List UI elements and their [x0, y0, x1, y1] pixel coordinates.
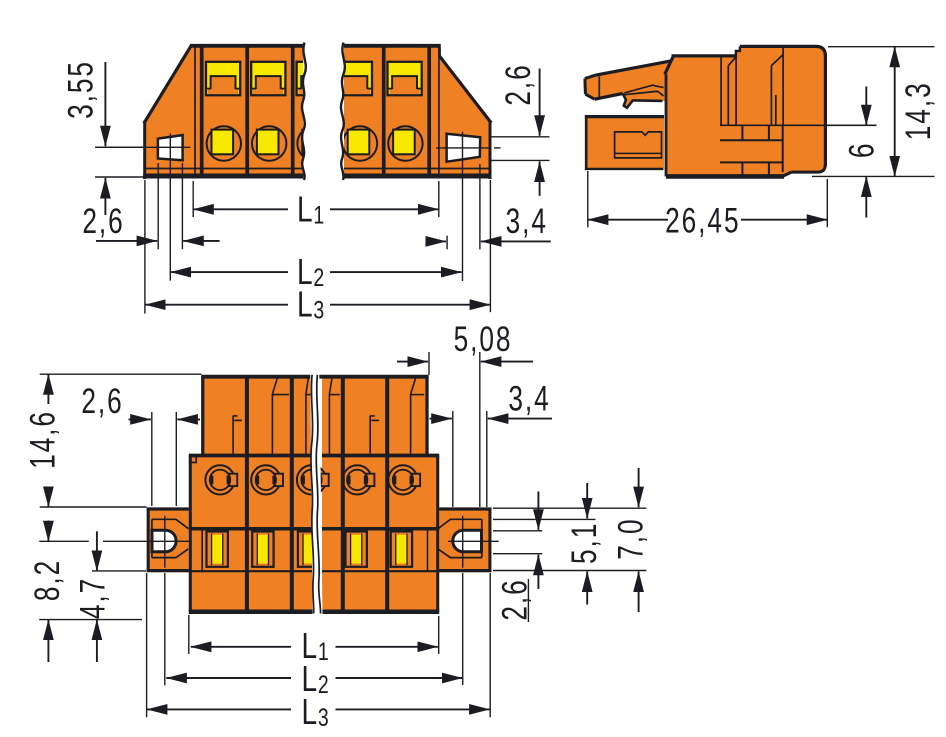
svg-text:4,7: 4,7 — [73, 577, 113, 619]
svg-text:3,4: 3,4 — [506, 202, 548, 242]
svg-text:2,6: 2,6 — [499, 63, 539, 105]
svg-text:3,4: 3,4 — [508, 379, 550, 419]
svg-text:14,6: 14,6 — [23, 410, 63, 469]
svg-text:5,1: 5,1 — [564, 522, 604, 564]
svg-text:8,2: 8,2 — [27, 559, 67, 601]
svg-text:7,0: 7,0 — [611, 517, 651, 559]
svg-text:3,55: 3,55 — [61, 60, 101, 119]
svg-text:6: 6 — [842, 142, 882, 159]
svg-text:26,45: 26,45 — [665, 201, 740, 241]
svg-text:14,3: 14,3 — [898, 81, 938, 140]
svg-text:2,6: 2,6 — [82, 201, 124, 241]
svg-text:5,08: 5,08 — [454, 319, 513, 359]
svg-text:2,6: 2,6 — [81, 382, 123, 422]
svg-text:L1: L1 — [297, 189, 324, 229]
